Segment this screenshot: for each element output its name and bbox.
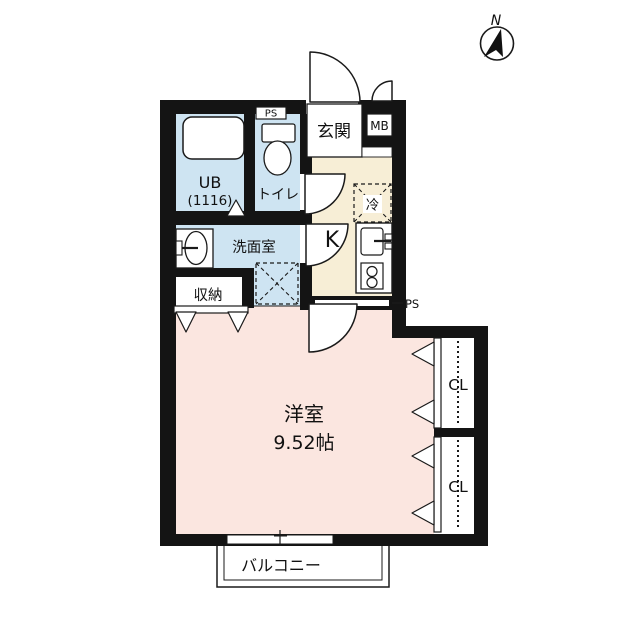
closet-lower-label: CL — [448, 478, 468, 496]
toilet-label: トイレ — [257, 187, 299, 203]
floor-plan: N 玄関 MB PS UB (1116) トイレ 洗面室 収納 K 冷 PS 洋… — [0, 0, 640, 639]
closet-upper-door-track — [434, 338, 441, 428]
wall-washroom-storage — [160, 268, 242, 277]
balcony-label: バルコニー — [241, 556, 321, 575]
unit-bath-label: UB — [199, 173, 222, 192]
stove-burner-1 — [367, 267, 377, 277]
kitchen-faucet-knob-1 — [385, 234, 392, 240]
bathtub — [183, 117, 244, 159]
entrance-step — [362, 147, 392, 157]
wall-mb-bottom — [358, 136, 394, 147]
meter-box-label: MB — [370, 119, 389, 133]
stove-burner-2 — [367, 278, 377, 288]
wall-left — [160, 100, 176, 546]
unit-bath-size-label: (1116) — [188, 193, 233, 209]
pipe-space-kitchen-label: PS — [405, 297, 419, 311]
north-label: N — [491, 13, 502, 29]
floor-plan-page: N 玄関 MB PS UB (1116) トイレ 洗面室 収納 K 冷 PS 洋… — [0, 0, 640, 639]
toilet-bowl — [264, 141, 291, 175]
refrigerator-label: 冷 — [366, 198, 380, 214]
closet-upper-label: CL — [448, 376, 468, 394]
toilet-tank — [262, 124, 295, 142]
entrance-label: 玄関 — [317, 122, 351, 142]
western-room-label: 洋室 — [284, 402, 324, 426]
wall-storage-right — [242, 268, 254, 308]
wall-closet-divider — [434, 428, 488, 437]
washbasin-faucet-handle — [176, 241, 182, 255]
kitchen-label: K — [325, 228, 340, 253]
western-room-size-label: 9.52帖 — [273, 432, 334, 454]
wall-closet-top — [392, 326, 488, 338]
wall-bath-toilet — [244, 114, 255, 211]
washroom-label: 洗面室 — [232, 239, 276, 256]
storage-label: 収納 — [194, 287, 223, 304]
pipe-space-toilet-label: PS — [265, 109, 277, 120]
kitchen-faucet-knob-2 — [385, 243, 392, 249]
closet-lower-door-track — [434, 437, 441, 532]
